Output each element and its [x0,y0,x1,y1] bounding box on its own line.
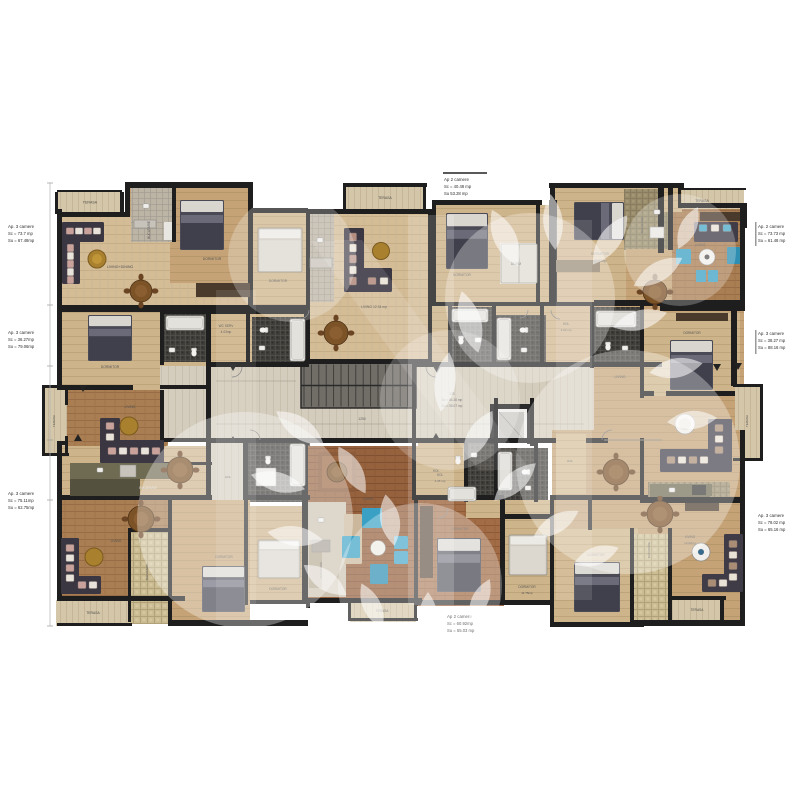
svg-text:TERASA: TERASA [83,201,98,205]
svg-text:DORMITOR: DORMITOR [101,365,120,369]
svg-text:Sc = 36.27mp: Sc = 36.27mp [8,337,35,342]
svg-text:Sc = 38.27 mp: Sc = 38.27 mp [758,338,786,343]
svg-text:LIVING: LIVING [363,497,374,501]
svg-text:LIVING+DINING: LIVING+DINING [107,265,134,269]
svg-text:Sc = 75.11mp: Sc = 75.11mp [8,498,34,503]
svg-text:Sc = 73.7 mp: Sc = 73.7 mp [8,231,33,236]
svg-text:TERASA: TERASA [691,608,705,612]
svg-text:TERASA: TERASA [86,611,100,615]
svg-text:Su = 61.48 mp: Su = 61.48 mp [758,238,786,243]
svg-text:Ap. 3 camere: Ap. 3 camere [758,513,785,518]
svg-text:DORMITOR: DORMITOR [683,331,701,335]
svg-text:Ap. 3 camere: Ap. 3 camere [758,331,785,336]
svg-text:TERASA: TERASA [745,415,749,427]
svg-text:Ap. 3 camere: Ap. 3 camere [8,491,35,496]
svg-text:11.75mp: 11.75mp [521,591,533,595]
svg-text:Su 53.28 mp: Su 53.28 mp [444,191,468,196]
svg-text:Sc = 73.73 mp: Sc = 73.73 mp [758,231,786,236]
svg-text:Su = 88.16 mp: Su = 88.16 mp [758,345,786,350]
svg-text:Ap. 3 camere: Ap. 3 camere [8,330,35,335]
svg-text:Sc = 78.02 mp: Sc = 78.02 mp [758,520,786,525]
svg-text:DORMITOR: DORMITOR [203,257,222,261]
svg-text:TERASA: TERASA [52,415,56,427]
svg-text:1250: 1250 [358,417,366,421]
svg-text:Ap 2 camere: Ap 2 camere [444,177,469,182]
svg-text:Su = 79.06mp: Su = 79.06mp [8,344,35,349]
svg-text:Sc = 40.48 mp: Sc = 40.48 mp [444,184,472,189]
svg-text:Su = 67.48mp: Su = 67.48mp [8,238,35,243]
svg-text:Ap. 3 camere: Ap. 3 camere [8,224,35,229]
svg-text:BUCATARIE: BUCATARIE [147,221,151,239]
svg-text:Ap. 2 camere: Ap. 2 camere [758,224,785,229]
svg-text:LIVING: LIVING [111,539,122,543]
svg-text:TERASA: TERASA [378,196,392,200]
svg-text:DORMITOR: DORMITOR [518,585,536,589]
svg-text:Su = 62.75mp: Su = 62.75mp [8,505,35,510]
svg-text:Su = 65.16 mp: Su = 65.16 mp [758,527,786,532]
svg-text:LIVING: LIVING [124,405,135,409]
